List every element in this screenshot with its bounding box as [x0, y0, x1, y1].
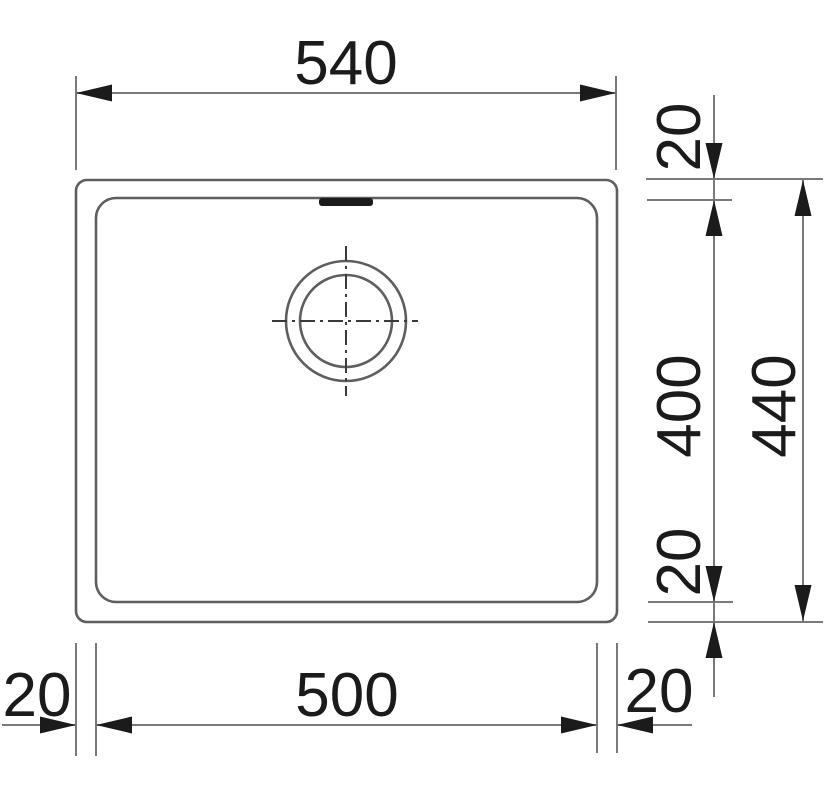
dim-rim-right-label: 20 — [625, 657, 694, 726]
dim-rim-top-label: 20 — [645, 103, 714, 172]
arrowhead-right-icon — [580, 85, 616, 102]
dim-rim-left-label: 20 — [3, 661, 72, 730]
dim-overall-height-label: 440 — [740, 354, 809, 457]
drawing-canvas: 540 20 400 20 440 — [0, 0, 825, 800]
sink-technical-drawing: 540 20 400 20 440 — [0, 0, 825, 800]
dim-right-chain: 20 400 20 — [645, 95, 723, 697]
arrowhead-left-icon — [96, 717, 132, 734]
dim-bowl-height-label: 400 — [645, 354, 714, 457]
arrowhead-up-icon — [795, 180, 812, 216]
arrowhead-left-icon — [76, 85, 112, 102]
arrowhead-down-icon — [795, 585, 812, 621]
dim-bowl-width-label: 500 — [295, 661, 398, 730]
overflow-slot — [319, 198, 373, 206]
dim-overall-width: 540 — [76, 29, 616, 170]
dim-overall-width-label: 540 — [294, 29, 397, 98]
arrowhead-right-icon — [561, 717, 597, 734]
dim-rim-bottom-label: 20 — [645, 528, 714, 597]
arrowhead-up-icon — [706, 200, 723, 236]
dim-overall-height: 440 — [740, 180, 812, 621]
arrowhead-up-icon — [706, 622, 723, 658]
dim-bottom-chain: 20 500 20 — [2, 657, 693, 734]
